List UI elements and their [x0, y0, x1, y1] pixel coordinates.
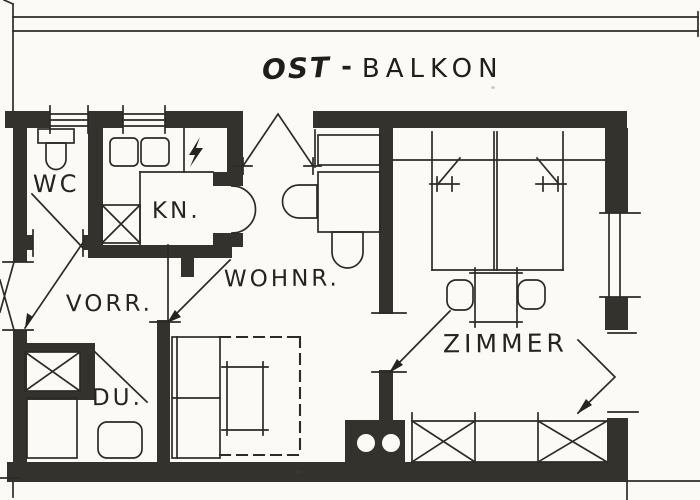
floor-plan-canvas: OST - BALKON WC KN. VORR. WOHNR. DU. ZIM… [0, 0, 700, 500]
kitchen-counter [140, 128, 213, 245]
balcony-title: OST - BALKON [262, 52, 504, 85]
kitchen-door-arc [232, 186, 256, 233]
sideboard-upper [315, 130, 380, 167]
shower-tray [27, 398, 77, 458]
foldout-bed-dashed [220, 337, 300, 455]
twin-beds [393, 132, 605, 270]
desk-chair-bottom [332, 232, 363, 268]
window-kitchen [123, 106, 165, 133]
room-label-bedroom: ZIMMER [443, 329, 568, 359]
couch [172, 337, 220, 458]
room-label-kitchen: KN. [152, 198, 201, 224]
title-separator: - [341, 52, 352, 82]
room-label-shower: DU. [92, 385, 143, 411]
desk-chair-left [283, 185, 318, 218]
title-balcony: BALKON [362, 54, 504, 84]
lightning-bolt-icon [189, 137, 203, 167]
hall-wardrobe [25, 352, 80, 391]
bed-lamp-right [536, 158, 566, 191]
bedroom-door-swing [372, 311, 450, 373]
bed-lamp-left [430, 158, 460, 191]
wc-toilet [38, 129, 74, 170]
bedroom-table [470, 268, 522, 327]
balcony-door-swing [234, 114, 321, 174]
french-window-swing [577, 333, 638, 414]
kitchen-sinks [110, 138, 169, 166]
scan-speck [491, 86, 495, 89]
shower-seat [98, 422, 142, 458]
east-window [600, 213, 640, 297]
title-orientation: OST [261, 51, 331, 86]
wc-door-swing [32, 194, 83, 256]
room-label-living: WOHNR. [224, 266, 340, 293]
room-label-hallway: VORR. [66, 291, 153, 318]
room-label-wc: WC [33, 170, 80, 198]
scan-speck [293, 470, 303, 474]
desk-lower [318, 172, 380, 232]
wardrobe-row [412, 413, 607, 462]
chimney [345, 420, 405, 465]
coffee-table [222, 362, 268, 435]
bedroom-chair-right [518, 280, 545, 309]
kitchen-appliance-box [102, 205, 140, 243]
bedroom-chair-left [447, 280, 473, 310]
